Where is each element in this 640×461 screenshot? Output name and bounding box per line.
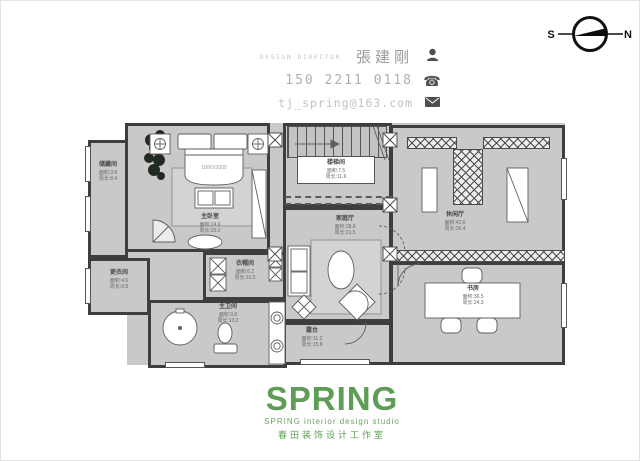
room-label: 更衣间面积:4.6周长:8.8 [91,270,147,290]
contact-block: DESIGN DIRECTOR 張建剛 150 2211 0118 ☎ tj_s… [260,46,442,112]
board-left [422,168,437,212]
compass-south-label: S [547,29,554,41]
bed-bench [195,188,233,208]
sofa [288,246,310,296]
design-poster: DESIGN DIRECTOR 張建剛 150 2211 0118 ☎ tj_s… [0,0,640,461]
envelope-icon [422,94,442,112]
toilet [214,323,237,353]
room-label: 储藏间面积:3.8周长:8.4 [80,162,136,182]
phone-row: 150 2211 0118 ☎ [285,73,442,88]
round-bathtub [163,309,197,345]
room-label: 主卫间面积:9.8周长:13.2 [200,304,256,324]
brand-name: SPRING [264,382,400,415]
compass: S N [543,8,635,65]
stool [188,235,222,249]
bed: 1800X2000 [178,134,247,185]
chair [477,318,497,333]
room-label: 楼梯间 面积:7.5 周长:11.6 [326,160,347,180]
room-label: 主卧室面积:24.6周长:20.2 [182,214,238,234]
nightstand-left [150,134,170,154]
room-label: 衣帽间面积:6.2周长:10.5 [217,261,273,281]
room-label: 家庭厅面积:28.8周长:21.5 [317,216,373,236]
email-address: tj_spring@163.com [278,96,413,110]
door-swing-dashed [379,268,405,294]
wardrobe [252,170,266,238]
nightstand-right [248,134,268,154]
chair [462,268,482,283]
brand-subtitle-cn: 春田装饰设计工作室 [264,428,400,441]
designer-row: DESIGN DIRECTOR 張建剛 [260,46,442,67]
study-door [398,264,420,286]
room-label: 休闲厅面积:42.6周长:26.4 [427,212,483,232]
board-right [507,168,528,222]
phone-icon: ☎ [422,74,442,88]
room-label: 书房面积:36.5周长:24.3 [445,286,501,306]
role-label: DESIGN DIRECTOR [260,53,341,61]
coffee-table [328,251,354,289]
brand-subtitle-en: SPRING interior design studio [264,417,400,426]
person-icon [422,48,442,66]
double-sink-counter [269,302,285,364]
email-row: tj_spring@163.com [278,94,442,112]
phone-number: 150 2211 0118 [285,73,413,88]
chair [441,318,461,333]
stair-landing: 楼梯间 面积:7.5 周长:11.6 [297,156,375,184]
compass-north-label: N [624,29,632,41]
bed-size-label: 1800X2000 [201,165,227,171]
brand-logo: SPRING SPRING interior design studio 春田装… [264,382,400,441]
designer-name: 張建剛 [356,46,413,67]
floor-plan: 1800X2000 [85,118,567,370]
stair-direction-arrow [331,140,339,148]
terrace-door-arc [345,323,366,344]
room-label: 露台面积:11.2周长:15.8 [284,328,340,348]
